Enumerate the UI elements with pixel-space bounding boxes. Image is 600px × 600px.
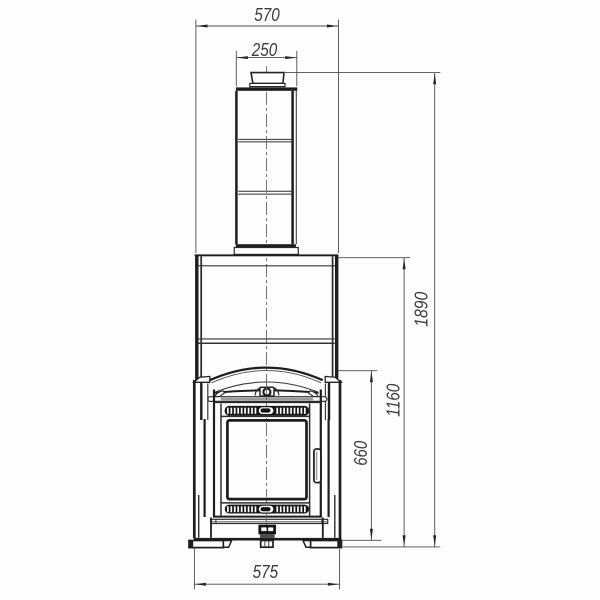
svg-text:660: 660 (351, 441, 371, 466)
svg-text:570: 570 (254, 4, 280, 25)
svg-text:1890: 1890 (412, 292, 432, 327)
svg-text:1160: 1160 (384, 384, 404, 417)
svg-text:250: 250 (251, 39, 278, 60)
svg-text:575: 575 (253, 561, 279, 582)
